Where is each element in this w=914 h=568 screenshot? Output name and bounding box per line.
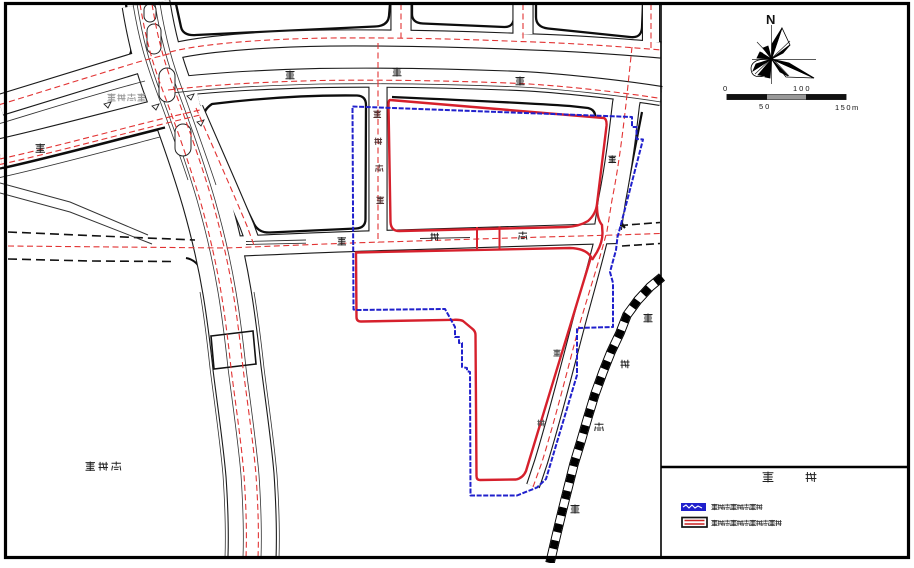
svg-text:100: 100 [793, 84, 812, 93]
svg-text:150m: 150m [835, 103, 860, 112]
svg-text:N: N [766, 12, 775, 27]
svg-text:0: 0 [723, 84, 729, 93]
svg-text:50: 50 [759, 102, 771, 111]
